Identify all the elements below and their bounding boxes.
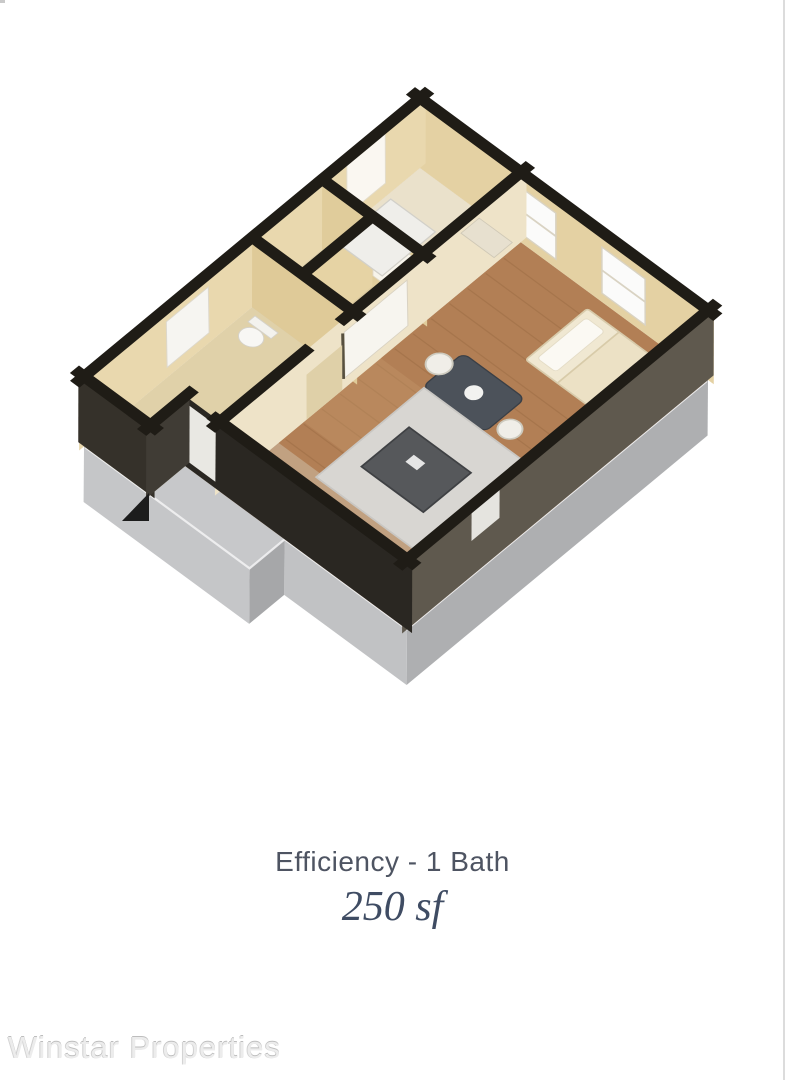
unit-area-label: 250 sf	[0, 883, 785, 931]
floor-plan-image	[0, 0, 785, 700]
watermark-text: Winstar Properties	[8, 1030, 281, 1066]
floor-plan-panel	[0, 0, 785, 700]
corner-artifact	[0, 0, 5, 3]
unit-type-label: Efficiency - 1 Bath	[0, 846, 785, 878]
plan-caption: Efficiency - 1 Bath 250 sf	[0, 846, 785, 931]
